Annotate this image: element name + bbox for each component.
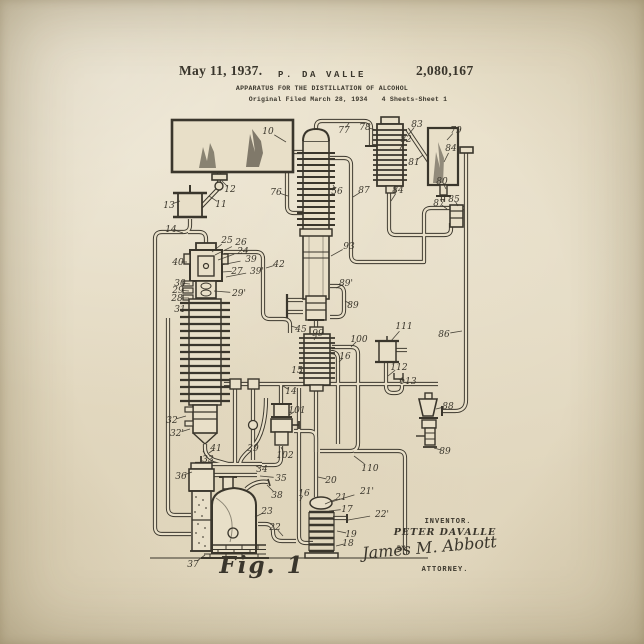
reference-label: 39 (247, 444, 259, 454)
reference-label: 28 (170, 294, 183, 304)
figure-label: Fig. 1 (214, 552, 310, 579)
reference-label: 36 (175, 472, 187, 482)
reference-label: 16 (339, 352, 351, 362)
reference-label: 112 (390, 363, 407, 373)
reference-label: 20 (324, 476, 337, 486)
leader-line (177, 416, 186, 419)
reference-label: 80 (436, 177, 448, 187)
attorney-caption: ATTORNEY. (405, 566, 485, 574)
reference-label: 41 (209, 444, 221, 454)
reference-label: 32 (166, 416, 178, 426)
reference-label: 22' (374, 510, 389, 520)
reference-label: 84 (445, 144, 457, 154)
reference-label: 13 (163, 201, 175, 211)
reference-label: 37 (187, 560, 199, 570)
reference-label: 111 (395, 322, 412, 332)
reference-label: 39' (250, 267, 264, 277)
reference-label: 31 (174, 305, 185, 315)
regulator-88 (416, 393, 438, 447)
inventor-caption: INVENTOR. (408, 518, 488, 526)
reference-label: 86 (438, 330, 450, 340)
reference-label: 89' (339, 279, 353, 289)
reference-label: 113 (399, 377, 416, 387)
reference-label: 14 (165, 225, 177, 235)
reference-label: 81 (408, 158, 419, 168)
reference-label: 40 (171, 258, 184, 268)
reference-label: 76 (270, 188, 282, 198)
reference-label: 45 (294, 325, 307, 335)
reference-label: 82 (400, 135, 412, 145)
leader-line (391, 331, 399, 341)
reference-label: 102 (276, 451, 293, 461)
vessel-13 (178, 193, 202, 217)
reference-label: 11 (215, 200, 226, 210)
reference-label: 18 (342, 539, 354, 549)
reference-label: 89 (347, 301, 359, 311)
reference-label: 110 (361, 464, 378, 474)
reference-label: 10 (262, 127, 274, 137)
reference-label: 22 (268, 523, 281, 533)
reference-label: 12 (224, 185, 236, 195)
reference-label: 87 (433, 199, 445, 209)
reference-label: 79 (450, 126, 462, 136)
reference-label: 78 (359, 123, 371, 133)
reference-label: 15 (291, 366, 303, 376)
supply-tank (172, 120, 293, 172)
reference-label: 17 (341, 505, 353, 515)
leader-line (329, 510, 341, 511)
pipe-86-cap (460, 147, 473, 153)
reference-label: 34 (256, 465, 268, 475)
reference-label: 29' (231, 289, 246, 299)
valve-12 (212, 174, 227, 180)
reference-label: 23 (260, 507, 273, 517)
reference-label: 16 (298, 489, 310, 499)
reference-label: 84 (392, 186, 404, 196)
reference-label: 21' (359, 487, 374, 497)
leader-line (450, 331, 462, 333)
leader-line (331, 250, 343, 257)
filter-36 (189, 456, 214, 551)
reference-label: 88 (442, 402, 454, 412)
reference-label: 39 (245, 255, 257, 265)
leader-line (348, 516, 370, 520)
reference-label: 25 (220, 236, 233, 246)
reference-label: 56 (331, 187, 343, 197)
reference-label: 32' (170, 429, 184, 439)
reference-label: 101 (288, 406, 305, 416)
reference-label: 33 (202, 455, 214, 465)
reference-label: 14 (285, 387, 297, 397)
left-column (180, 243, 230, 444)
reference-label: 85 (448, 195, 460, 205)
patent-drawing: 1012111314767778828381798480858784878656… (0, 0, 644, 644)
reference-label: 89 (439, 447, 451, 457)
reference-label: 77 (338, 126, 350, 136)
reference-label: 35 (275, 474, 287, 484)
leader-line (354, 456, 364, 464)
reference-label: 83 (411, 120, 423, 130)
reference-label: 42 (272, 260, 285, 270)
leader-line (260, 476, 274, 477)
fitting-85 (450, 205, 463, 227)
reference-label: 100 (350, 335, 367, 345)
reference-label: 99 (312, 329, 324, 339)
reference-label: 38 (271, 491, 283, 501)
patent-poster: May 11, 1937. P. DA VALLE 2,080,167 APPA… (0, 0, 644, 644)
reference-label: 87 (358, 186, 370, 196)
reference-label: 93 (343, 242, 355, 252)
